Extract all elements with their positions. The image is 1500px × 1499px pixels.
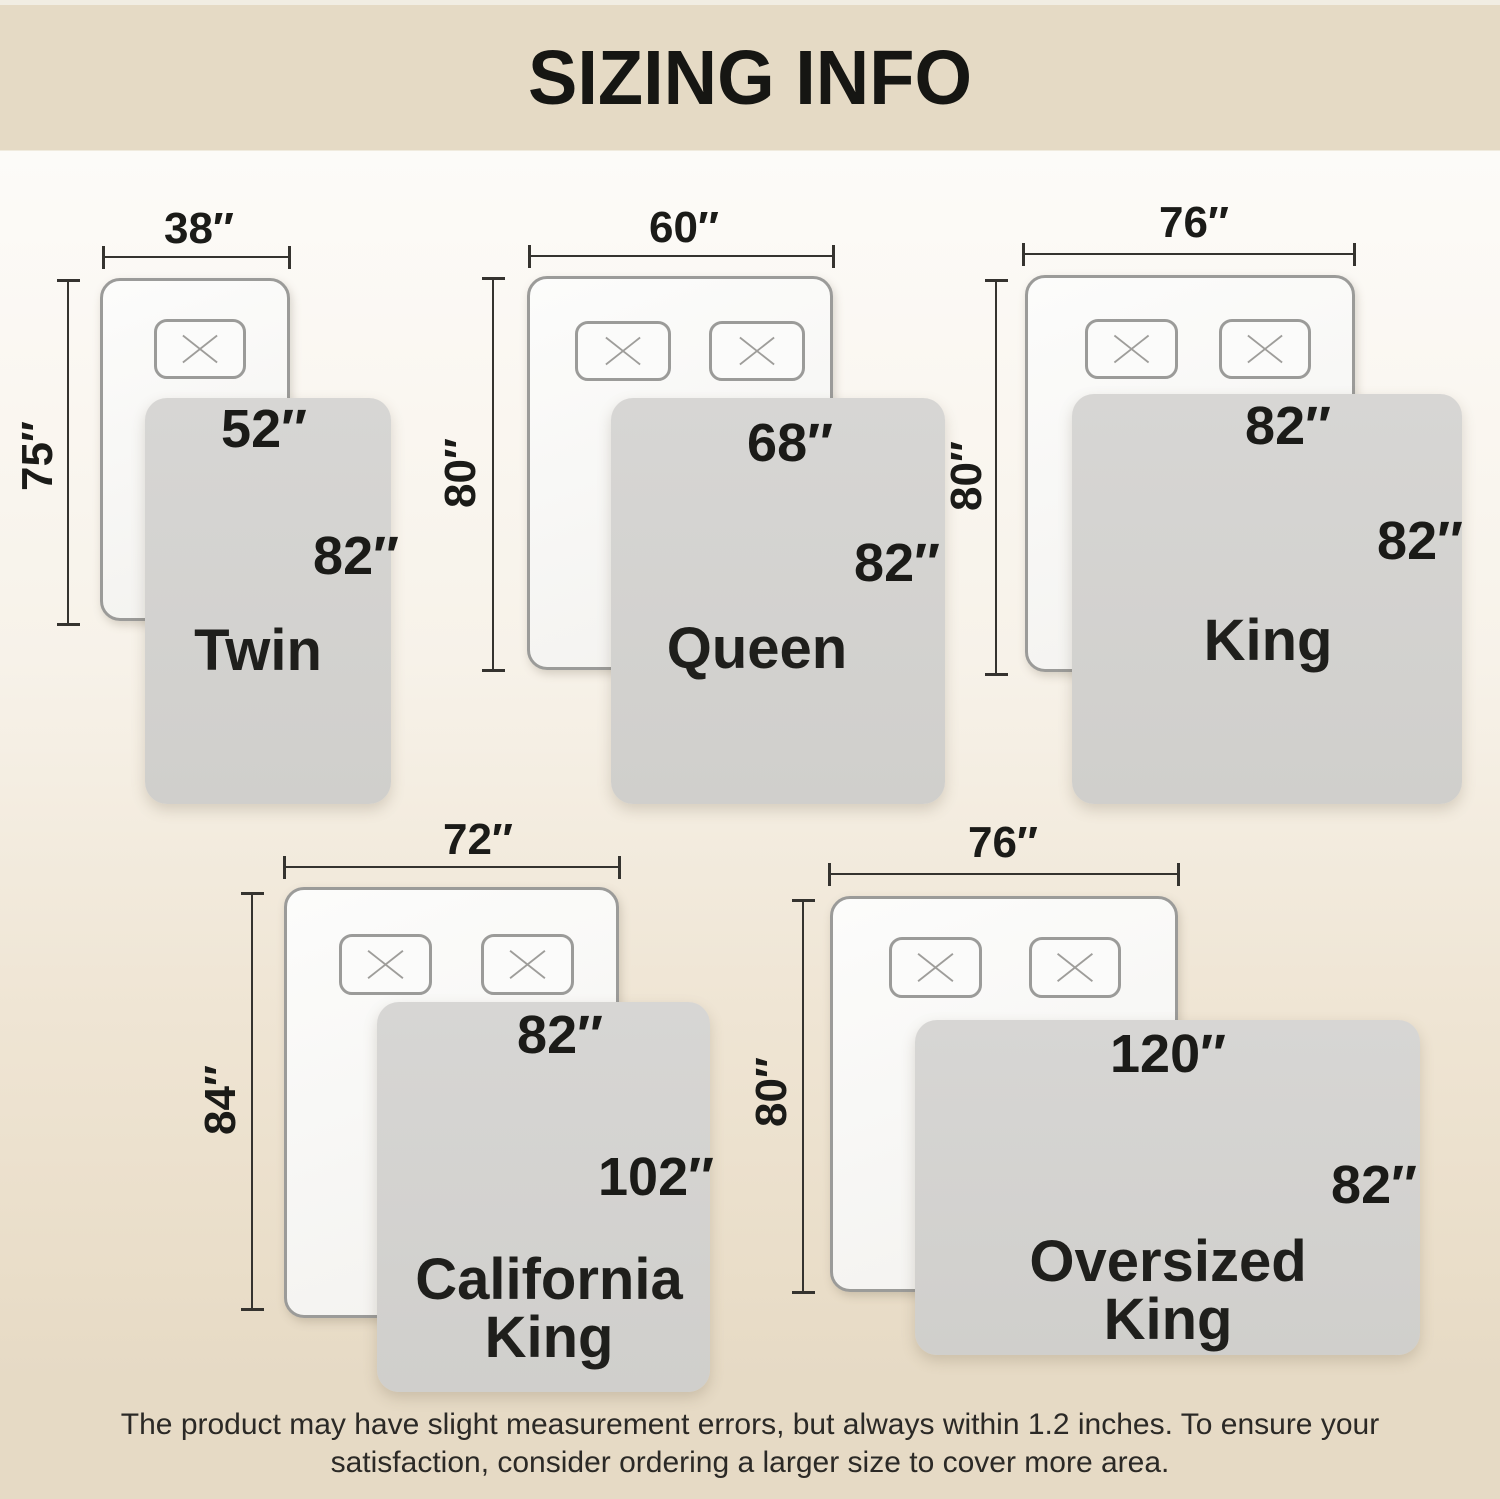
twin-width-dimension-line [103, 256, 290, 258]
queen-bed-height-label: 80″ [436, 438, 486, 508]
king-bed-height-label: 80″ [942, 441, 992, 511]
size-name-line: King [415, 1309, 683, 1367]
california-king-height-dimension-line [251, 893, 253, 1310]
pillow [575, 321, 671, 381]
oversized-king-blanket-width-label: 120″ [1110, 1023, 1226, 1085]
pillow [1085, 319, 1178, 379]
california-king-bed-height-label: 84″ [196, 1065, 246, 1135]
twin-bed-height-label: 75″ [13, 421, 63, 491]
twin-height-dimension-line [67, 280, 69, 625]
disclaimer-line-2: satisfaction, consider ordering a larger… [0, 1444, 1500, 1482]
pillow-x-icon [484, 937, 571, 992]
page-title: SIZING INFO [528, 33, 972, 121]
king-width-dimension-line [1023, 253, 1355, 255]
size-name-line: California [415, 1251, 683, 1309]
size-name-line: King [1029, 1291, 1306, 1349]
size-name-line: Oversized [1029, 1233, 1306, 1291]
pillow [709, 321, 805, 381]
twin-bed-width-label: 38″ [164, 204, 234, 254]
oversized-king-bed-height-label: 80″ [747, 1057, 797, 1127]
twin-blanket-length-label: 82″ [313, 525, 399, 587]
king-blanket-length-label: 82″ [1377, 510, 1463, 572]
pillow [1029, 937, 1121, 998]
king-height-dimension-line [995, 280, 997, 675]
california-king-bed-width-label: 72″ [443, 815, 513, 865]
twin-blanket-width-label: 52″ [221, 398, 307, 460]
oversized-king-blanket-length-label: 82″ [1331, 1154, 1417, 1216]
pillow-x-icon [578, 324, 668, 378]
sizing-infographic: SIZING INFO 38″ 75″ 52″ 82″ Twin 60″ 80″ [0, 0, 1500, 1499]
pillow-x-icon [892, 940, 979, 995]
pillow [339, 934, 432, 995]
pillow [889, 937, 982, 998]
king-bed-width-label: 76″ [1159, 198, 1229, 248]
disclaimer-line-1: The product may have slight measurement … [0, 1406, 1500, 1444]
queen-width-dimension-line [529, 255, 834, 257]
king-size-name: King [1204, 612, 1333, 670]
king-blanket-width-label: 82″ [1245, 395, 1331, 457]
oversized-king-bed-width-label: 76″ [968, 818, 1038, 868]
pillow-x-icon [342, 937, 429, 992]
disclaimer-text: The product may have slight measurement … [0, 1406, 1500, 1482]
oversized-king-width-dimension-line [829, 873, 1179, 875]
queen-blanket-width-label: 68″ [747, 412, 833, 474]
pillow-x-icon [1222, 322, 1308, 376]
pillow-x-icon [712, 324, 802, 378]
pillow-x-icon [1088, 322, 1175, 376]
pillow [481, 934, 574, 995]
oversized-king-height-dimension-line [802, 900, 804, 1293]
queen-size-name: Queen [667, 620, 848, 678]
queen-height-dimension-line [492, 278, 494, 671]
california-king-width-dimension-line [284, 866, 620, 868]
california-king-blanket-width-label: 82″ [517, 1004, 603, 1066]
header-banner: SIZING INFO [0, 5, 1500, 150]
pillow [154, 319, 246, 379]
queen-blanket-length-label: 82″ [854, 532, 940, 594]
pillow-x-icon [157, 322, 243, 376]
twin-size-name: Twin [194, 622, 322, 680]
california-king-size-name: California King [415, 1251, 683, 1367]
california-king-blanket-length-label: 102″ [598, 1146, 714, 1208]
pillow [1219, 319, 1311, 379]
pillow-x-icon [1032, 940, 1118, 995]
oversized-king-size-name: Oversized King [1029, 1233, 1306, 1349]
queen-bed-width-label: 60″ [649, 203, 719, 253]
